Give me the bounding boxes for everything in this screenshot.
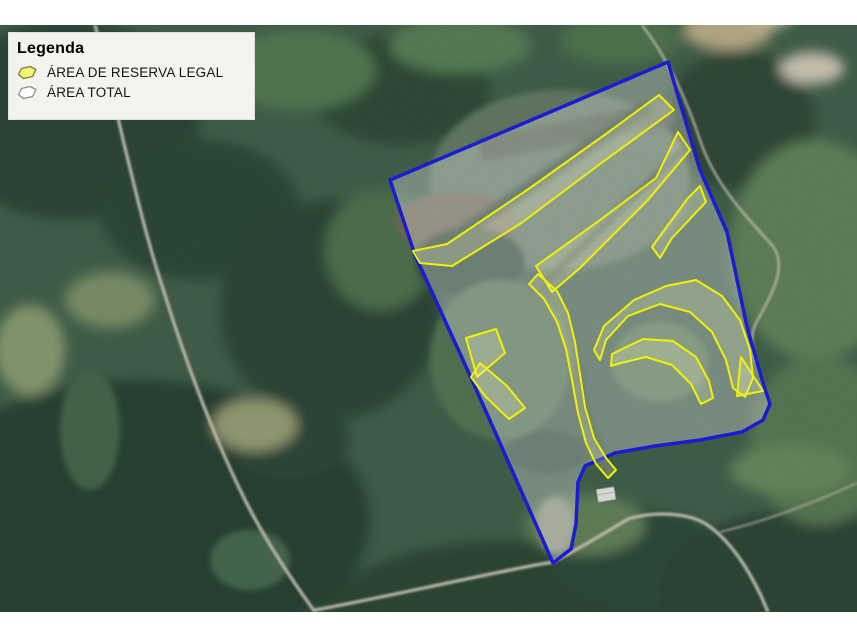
legend-item-reserva-legal: ÁREA DE RESERVA LEGAL [17,65,244,80]
legend-title: Legenda [17,40,244,58]
reserva-legal-swatch-icon [17,65,38,80]
page-margin-bottom [0,612,857,643]
page: Legenda ÁREA DE RESERVA LEGAL ÁREA TOTAL [0,0,857,643]
legend-item-label: ÁREA DE RESERVA LEGAL [47,65,223,80]
area-total-swatch-icon [17,85,38,100]
legend-item-area-total: ÁREA TOTAL [17,85,244,100]
page-margin-top [0,0,857,25]
map-legend: Legenda ÁREA DE RESERVA LEGAL ÁREA TOTAL [8,32,255,120]
legend-item-label: ÁREA TOTAL [47,85,131,100]
